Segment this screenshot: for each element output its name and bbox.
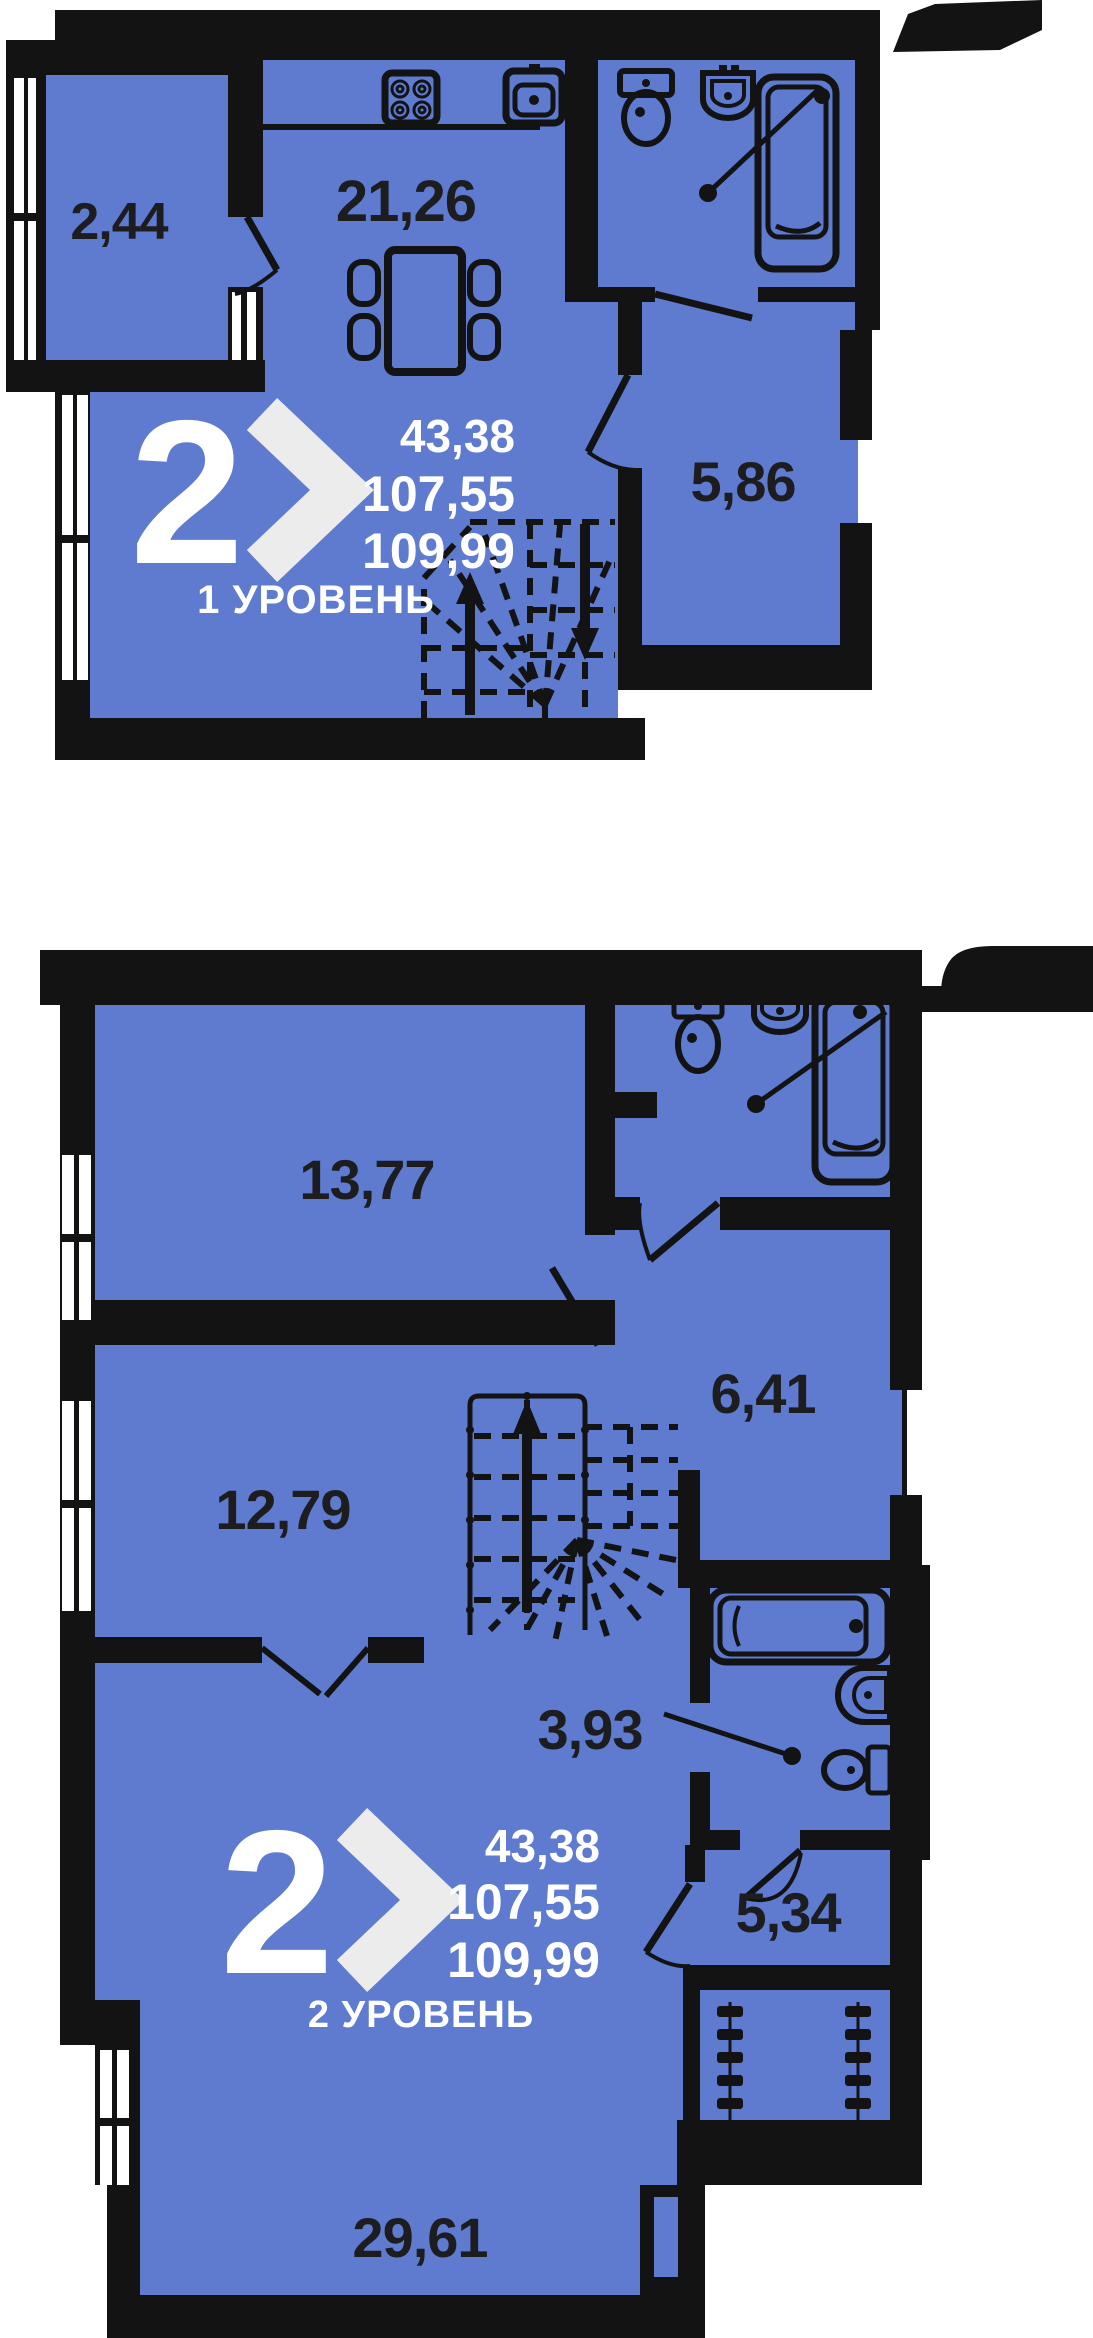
room-area-label: 21,26 — [336, 169, 476, 234]
top-right-logo-icon — [893, 0, 1042, 52]
corridor-floor — [95, 1640, 890, 1845]
area-main: 107,55 — [362, 466, 515, 522]
area-total: 109,99 — [362, 523, 515, 579]
area-living: 43,38 — [400, 410, 515, 462]
room-area-label: 5,34 — [736, 1881, 842, 1944]
bedroom1-floor — [95, 1000, 890, 1300]
area-living: 43,38 — [485, 1820, 600, 1872]
floor-plan-level-2: 13,77 12,79 6,41 3,93 5,34 29,61 2 43,38… — [0, 940, 1093, 2338]
room-area-label: 29,61 — [352, 2206, 487, 2269]
room-area-label: 12,79 — [215, 1478, 350, 1541]
top-right-logo-icon — [916, 946, 1093, 1012]
area-main: 107,55 — [447, 1874, 600, 1930]
level-label: 1 УРОВЕНЬ — [197, 578, 435, 622]
room-area-label: 13,77 — [299, 1148, 434, 1211]
floor-plan-level-1: 2,44 21,26 5,86 2 43,38 107,55 109,99 1 … — [0, 0, 1093, 790]
room-area-label: 2,44 — [70, 193, 168, 251]
room-area-label: 3,93 — [538, 1698, 643, 1761]
level-label: 2 УРОВЕНЬ — [308, 1994, 534, 2036]
floor-plan-page: 2,44 21,26 5,86 2 43,38 107,55 109,99 1 … — [0, 0, 1093, 2338]
rooms-count: 2 — [220, 1788, 330, 2017]
rooms-count: 2 — [130, 378, 240, 607]
room-area-label: 6,41 — [711, 1362, 816, 1425]
room-area-label: 5,86 — [691, 450, 796, 513]
area-total: 109,99 — [447, 1932, 600, 1988]
